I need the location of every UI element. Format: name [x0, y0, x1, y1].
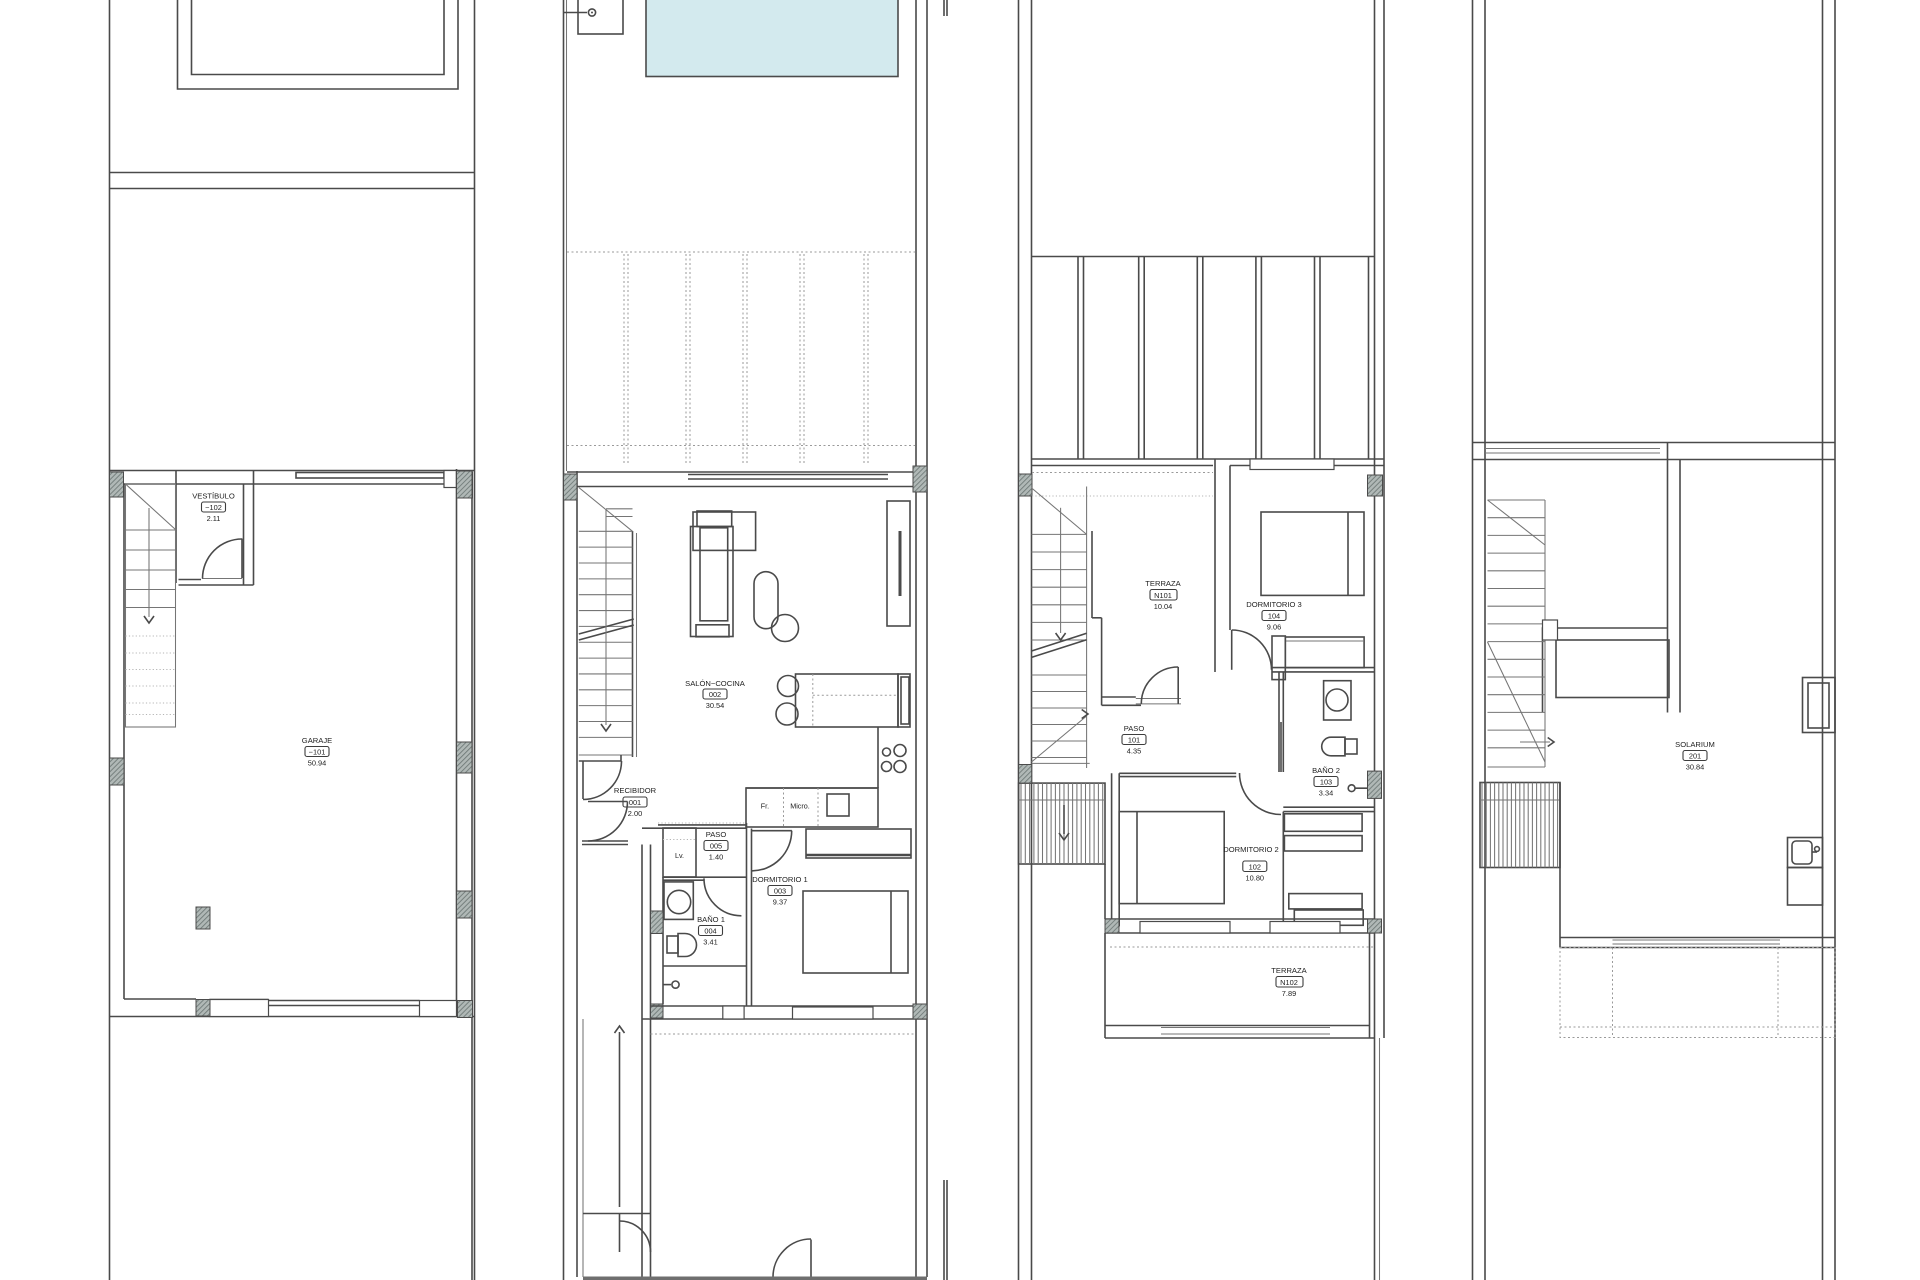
svg-text:7.89: 7.89 — [1282, 989, 1296, 998]
svg-text:104: 104 — [1268, 612, 1280, 621]
svg-text:101: 101 — [1128, 736, 1140, 745]
svg-text:102: 102 — [1249, 863, 1261, 872]
svg-text:Lv.: Lv. — [675, 851, 684, 860]
svg-text:9.06: 9.06 — [1267, 623, 1281, 632]
svg-text:9.37: 9.37 — [773, 898, 787, 907]
svg-text:TERRAZA: TERRAZA — [1145, 579, 1181, 588]
svg-text:N101: N101 — [1154, 591, 1172, 600]
svg-text:−101: −101 — [309, 748, 326, 757]
svg-text:N102: N102 — [1280, 978, 1298, 987]
svg-text:Micro.: Micro. — [790, 802, 810, 811]
svg-text:005: 005 — [710, 842, 722, 851]
svg-text:10.80: 10.80 — [1246, 874, 1265, 883]
svg-text:001: 001 — [629, 798, 641, 807]
svg-text:002: 002 — [709, 690, 721, 699]
svg-text:BAÑO 1: BAÑO 1 — [697, 915, 725, 924]
svg-text:PASO: PASO — [1124, 724, 1145, 733]
svg-text:2.11: 2.11 — [207, 514, 221, 523]
svg-text:GARAJE: GARAJE — [302, 736, 332, 745]
svg-text:PASO: PASO — [706, 830, 727, 839]
svg-text:3.34: 3.34 — [1319, 789, 1333, 798]
svg-text:SOLARIUM: SOLARIUM — [1675, 740, 1715, 749]
svg-text:3.41: 3.41 — [703, 938, 717, 947]
svg-text:4.35: 4.35 — [1127, 747, 1141, 756]
svg-text:VESTÍBULO: VESTÍBULO — [192, 492, 235, 501]
svg-text:SALÓN−COCINA: SALÓN−COCINA — [685, 679, 746, 688]
svg-text:30.84: 30.84 — [1686, 763, 1705, 772]
svg-text:1.40: 1.40 — [709, 853, 723, 862]
svg-text:BAÑO 2: BAÑO 2 — [1312, 766, 1340, 775]
svg-text:2.00: 2.00 — [628, 809, 642, 818]
svg-text:201: 201 — [1689, 752, 1701, 761]
svg-text:DORMITORIO 2: DORMITORIO 2 — [1223, 845, 1279, 854]
svg-text:103: 103 — [1320, 778, 1332, 787]
svg-text:DORMITORIO 3: DORMITORIO 3 — [1246, 600, 1302, 609]
svg-text:30.54: 30.54 — [706, 701, 725, 710]
svg-text:50.94: 50.94 — [308, 759, 327, 768]
svg-text:RECIBIDOR: RECIBIDOR — [614, 786, 657, 795]
svg-text:TERRAZA: TERRAZA — [1271, 966, 1307, 975]
svg-text:004: 004 — [704, 927, 716, 936]
svg-text:10.04: 10.04 — [1154, 602, 1173, 611]
svg-text:003: 003 — [774, 887, 786, 896]
svg-text:Fr.: Fr. — [761, 802, 769, 811]
svg-text:−102: −102 — [205, 503, 222, 512]
svg-text:DORMITORIO 1: DORMITORIO 1 — [752, 875, 808, 884]
